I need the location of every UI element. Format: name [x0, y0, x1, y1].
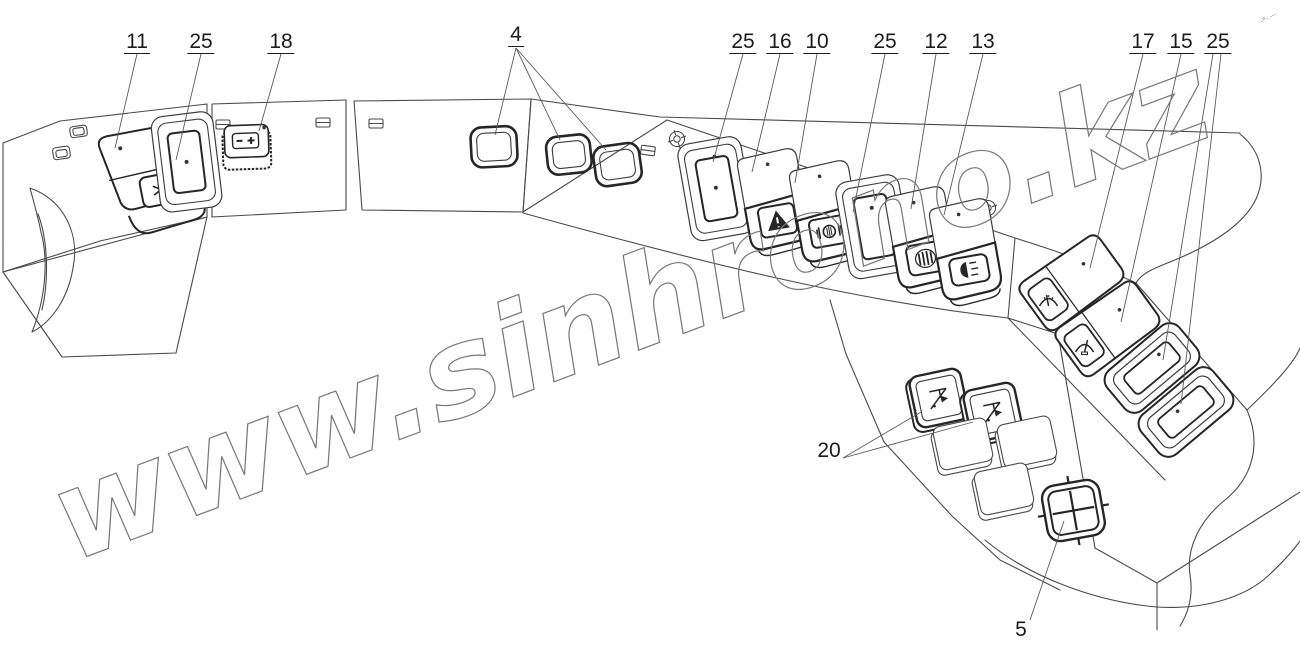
dashboard-diagram: www.sinhrono.kz ·°· ··· 11 25 18 4 25 16… [0, 0, 1300, 652]
panel-three [354, 99, 531, 212]
callout-25-b: 25 [729, 31, 756, 54]
blanking-plugs [470, 126, 643, 188]
blank-button [970, 462, 1036, 522]
right-curve-up [1247, 348, 1300, 410]
callout-17: 17 [1129, 31, 1156, 54]
callout-12: 12 [922, 31, 949, 54]
four-way-switch [1032, 470, 1115, 551]
callout-25-d: 25 [1204, 31, 1231, 54]
callout-5: 5 [1013, 619, 1029, 640]
blanking-plug [545, 133, 593, 175]
corner-marks: ·°· ··· [1259, 11, 1278, 26]
bottom-wave-left [985, 540, 1157, 607]
callout-25-c: 25 [871, 31, 898, 54]
fold-a [523, 100, 531, 212]
steering-cutout [30, 188, 75, 332]
callout-11: 11 [124, 31, 150, 54]
panel-left-lower [3, 217, 207, 357]
console-bottom-v [1095, 492, 1300, 583]
rocker-switch-left [150, 110, 223, 213]
callout-20: 20 [815, 440, 842, 461]
callout-16: 16 [766, 31, 793, 54]
blanking-plug [592, 142, 643, 188]
callout-18: 18 [267, 31, 294, 54]
line-art: www.sinhrono.kz ·°· ··· [0, 0, 1300, 652]
callout-4: 4 [508, 24, 524, 47]
callout-10: 10 [803, 31, 830, 54]
callout-15: 15 [1167, 31, 1194, 54]
callout-13: 13 [969, 31, 996, 54]
battery-disconnect-button [222, 124, 272, 170]
blanking-plug [470, 126, 518, 168]
switch-strip-right [1008, 238, 1015, 318]
bottom-wave-right [1157, 541, 1300, 607]
callout-25-a: 25 [187, 31, 214, 54]
connector-cutouts [52, 125, 88, 160]
